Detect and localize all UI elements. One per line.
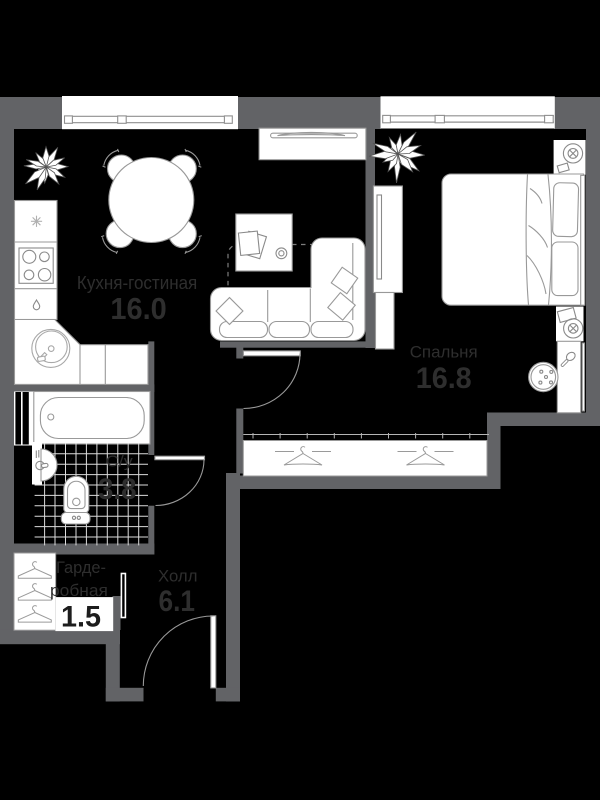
svg-text:Гарде-: Гарде- [56, 559, 106, 577]
svg-text:С/у: С/у [106, 452, 133, 470]
svg-text:16.0: 16.0 [110, 292, 166, 326]
svg-text:Кухня-гостиная: Кухня-гостиная [77, 272, 197, 293]
svg-text:1.5: 1.5 [61, 601, 101, 633]
svg-text:3.8: 3.8 [98, 473, 137, 506]
svg-text:Спальня: Спальня [410, 342, 478, 361]
svg-text:16.8: 16.8 [416, 361, 472, 395]
svg-text:6.1: 6.1 [159, 583, 195, 617]
